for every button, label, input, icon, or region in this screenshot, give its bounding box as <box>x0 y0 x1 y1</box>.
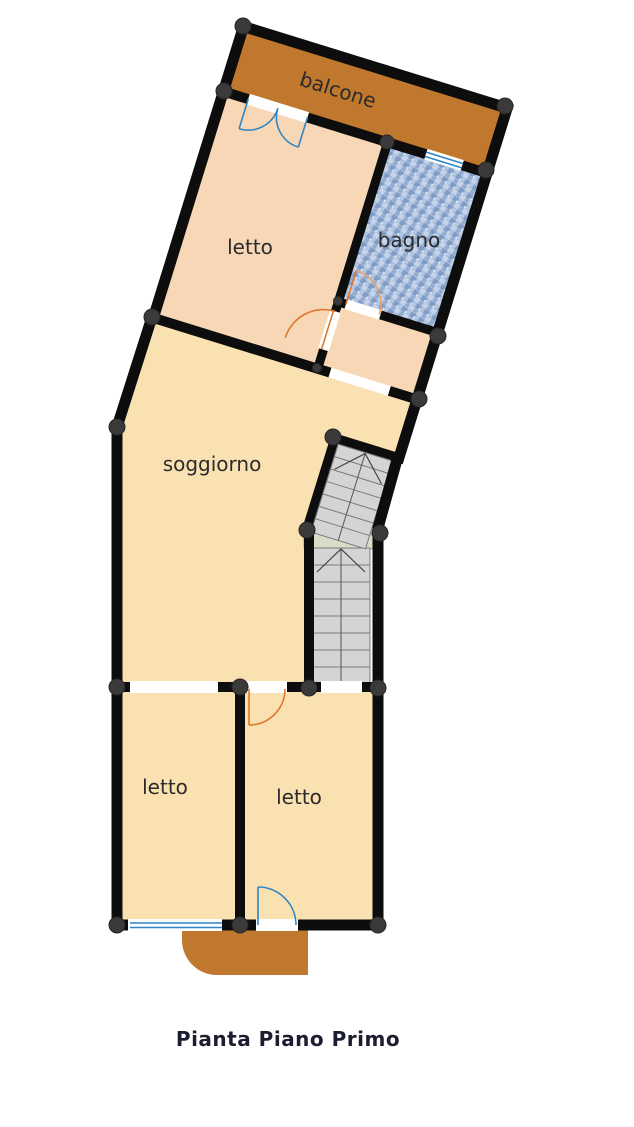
balcony-lower <box>182 928 308 975</box>
stairs-lower <box>304 530 377 685</box>
label-letto-lower-left: letto <box>142 775 188 799</box>
floor-plan: balcone letto bagno soggiorno letto lett… <box>0 0 634 1127</box>
label-letto-upper: letto <box>227 235 273 259</box>
letto-lower-left-floor <box>117 687 240 925</box>
label-letto-lower-right: letto <box>276 785 322 809</box>
plan-caption: Pianta Piano Primo <box>176 1027 400 1051</box>
label-soggiorno: soggiorno <box>163 452 262 476</box>
floor-plan-page: balcone letto bagno soggiorno letto lett… <box>0 0 634 1127</box>
label-bagno: bagno <box>378 228 441 252</box>
